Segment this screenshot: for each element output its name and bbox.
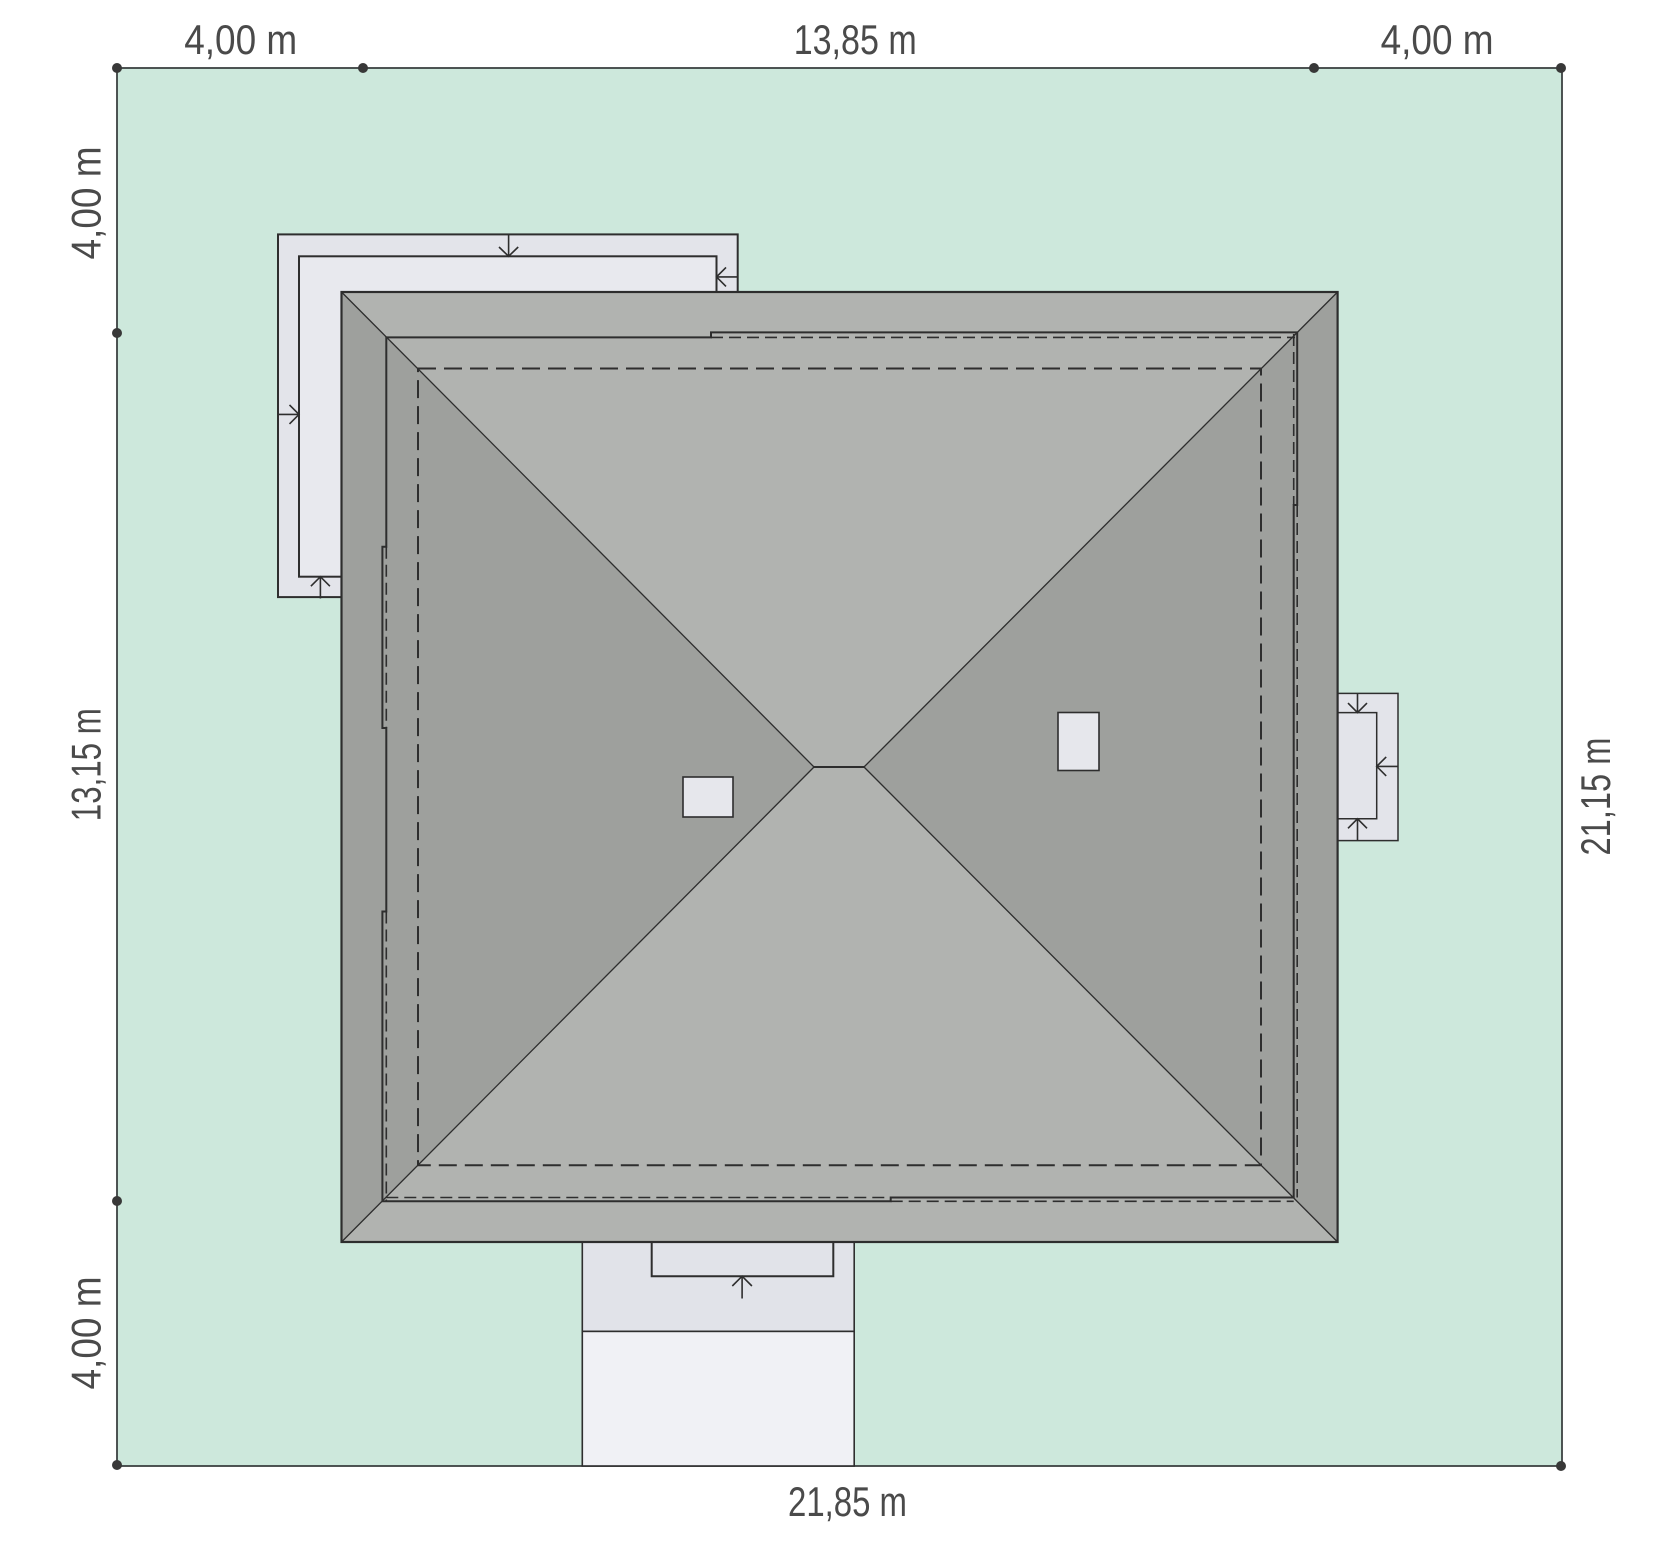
svg-text:4,00 m: 4,00 m <box>1381 16 1494 63</box>
svg-text:21,15 m: 21,15 m <box>1572 738 1619 856</box>
svg-text:13,85 m: 13,85 m <box>794 16 917 63</box>
svg-text:21,85 m: 21,85 m <box>788 1478 907 1525</box>
svg-text:4,00 m: 4,00 m <box>62 1277 109 1390</box>
svg-text:13,15 m: 13,15 m <box>62 708 109 821</box>
svg-text:4,00 m: 4,00 m <box>62 147 109 260</box>
svg-text:4,00 m: 4,00 m <box>184 16 297 63</box>
